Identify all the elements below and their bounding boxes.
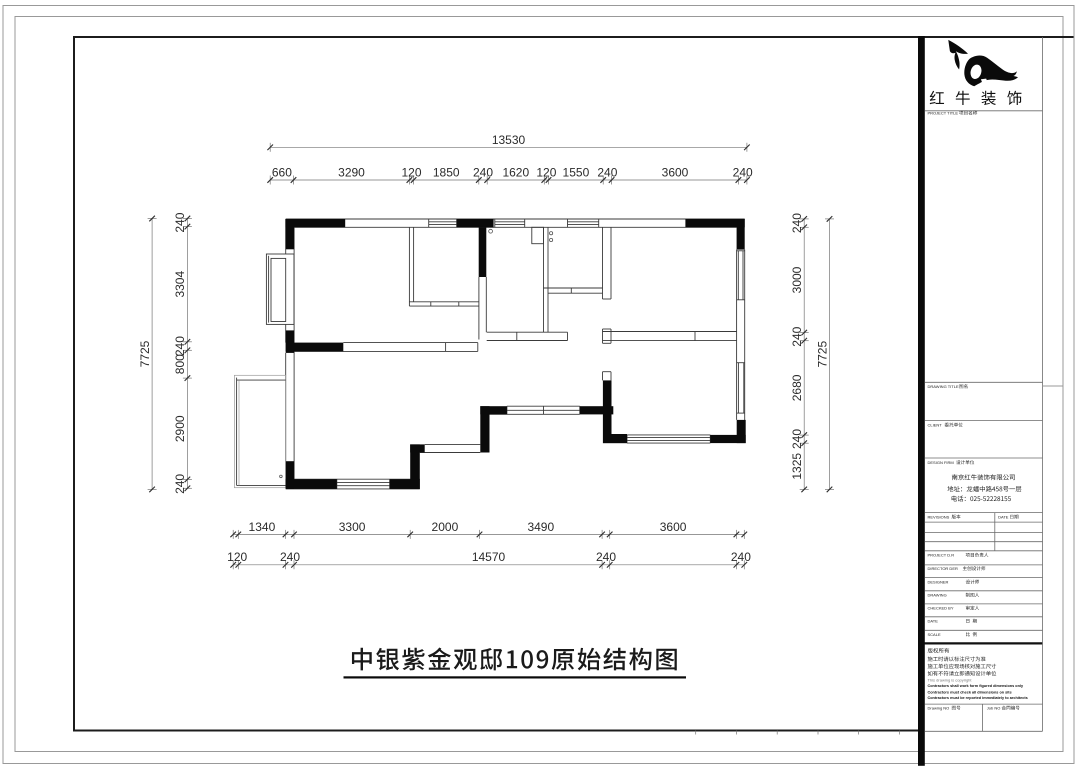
svg-text:120: 120	[227, 550, 247, 564]
svg-text:DATE: DATE	[998, 514, 1009, 519]
svg-text:2000: 2000	[432, 520, 459, 534]
svg-text:13530: 13530	[492, 133, 526, 147]
svg-text:Contractors must check all dim: Contractors must check all dimensions on…	[928, 691, 1012, 695]
svg-text:PROJECT D.R: PROJECT D.R	[928, 553, 955, 558]
svg-text:1550: 1550	[563, 166, 590, 180]
svg-text:3304: 3304	[173, 271, 187, 298]
svg-text:660: 660	[272, 166, 292, 180]
svg-text:240: 240	[597, 166, 617, 180]
svg-text:Contractors must be reported i: Contractors must be reported immediately…	[928, 696, 1028, 700]
svg-text:1620: 1620	[502, 166, 529, 180]
svg-text:3600: 3600	[662, 166, 689, 180]
svg-text:240: 240	[173, 336, 187, 356]
svg-text:7725: 7725	[815, 341, 829, 368]
svg-text:800: 800	[173, 354, 187, 374]
svg-text:1850: 1850	[433, 166, 460, 180]
svg-text:This drawing is copyright: This drawing is copyright	[928, 678, 973, 683]
svg-text:3000: 3000	[790, 266, 804, 293]
svg-text:1340: 1340	[249, 520, 276, 534]
svg-text:240: 240	[733, 166, 753, 180]
svg-text:PROJECT TITLE: PROJECT TITLE	[928, 111, 959, 116]
svg-text:2900: 2900	[173, 415, 187, 442]
svg-text:240: 240	[731, 550, 751, 564]
svg-text:Contractors shall work form fi: Contractors shall work form figured dime…	[928, 684, 1024, 688]
svg-text:240: 240	[173, 212, 187, 232]
svg-text:DIRECTOR DER: DIRECTOR DER	[928, 566, 958, 571]
svg-text:CHECKED BY: CHECKED BY	[928, 606, 954, 611]
svg-text:CLIENT: CLIENT	[928, 423, 943, 428]
svg-text:240: 240	[790, 326, 804, 346]
svg-text:240: 240	[280, 550, 300, 564]
svg-text:2680: 2680	[790, 374, 804, 401]
svg-text:DESIGN FIRM: DESIGN FIRM	[928, 460, 954, 465]
svg-text:240: 240	[596, 550, 616, 564]
svg-text:Drawing NO: Drawing NO	[928, 706, 950, 711]
svg-text:DRAWING TITLE: DRAWING TITLE	[928, 384, 959, 389]
svg-text:1325: 1325	[790, 453, 804, 480]
svg-text:Job NO: Job NO	[987, 706, 1001, 711]
svg-text:3300: 3300	[339, 520, 366, 534]
svg-text:240: 240	[473, 166, 493, 180]
svg-text:DESIGNER: DESIGNER	[928, 580, 949, 585]
svg-text:REVISIONS: REVISIONS	[928, 514, 950, 519]
svg-text:3490: 3490	[527, 520, 554, 534]
svg-text:120: 120	[536, 166, 556, 180]
svg-text:120: 120	[401, 166, 421, 180]
svg-text:240: 240	[790, 429, 804, 449]
svg-text:3600: 3600	[660, 520, 687, 534]
svg-text:7725: 7725	[138, 340, 152, 367]
svg-text:240: 240	[173, 474, 187, 494]
svg-text:DATE: DATE	[928, 619, 939, 624]
svg-text:14570: 14570	[472, 550, 506, 564]
svg-text:SCALE: SCALE	[928, 632, 941, 637]
svg-text:240: 240	[790, 213, 804, 233]
svg-text:3290: 3290	[338, 166, 365, 180]
svg-text:DRAWING: DRAWING	[928, 593, 947, 598]
